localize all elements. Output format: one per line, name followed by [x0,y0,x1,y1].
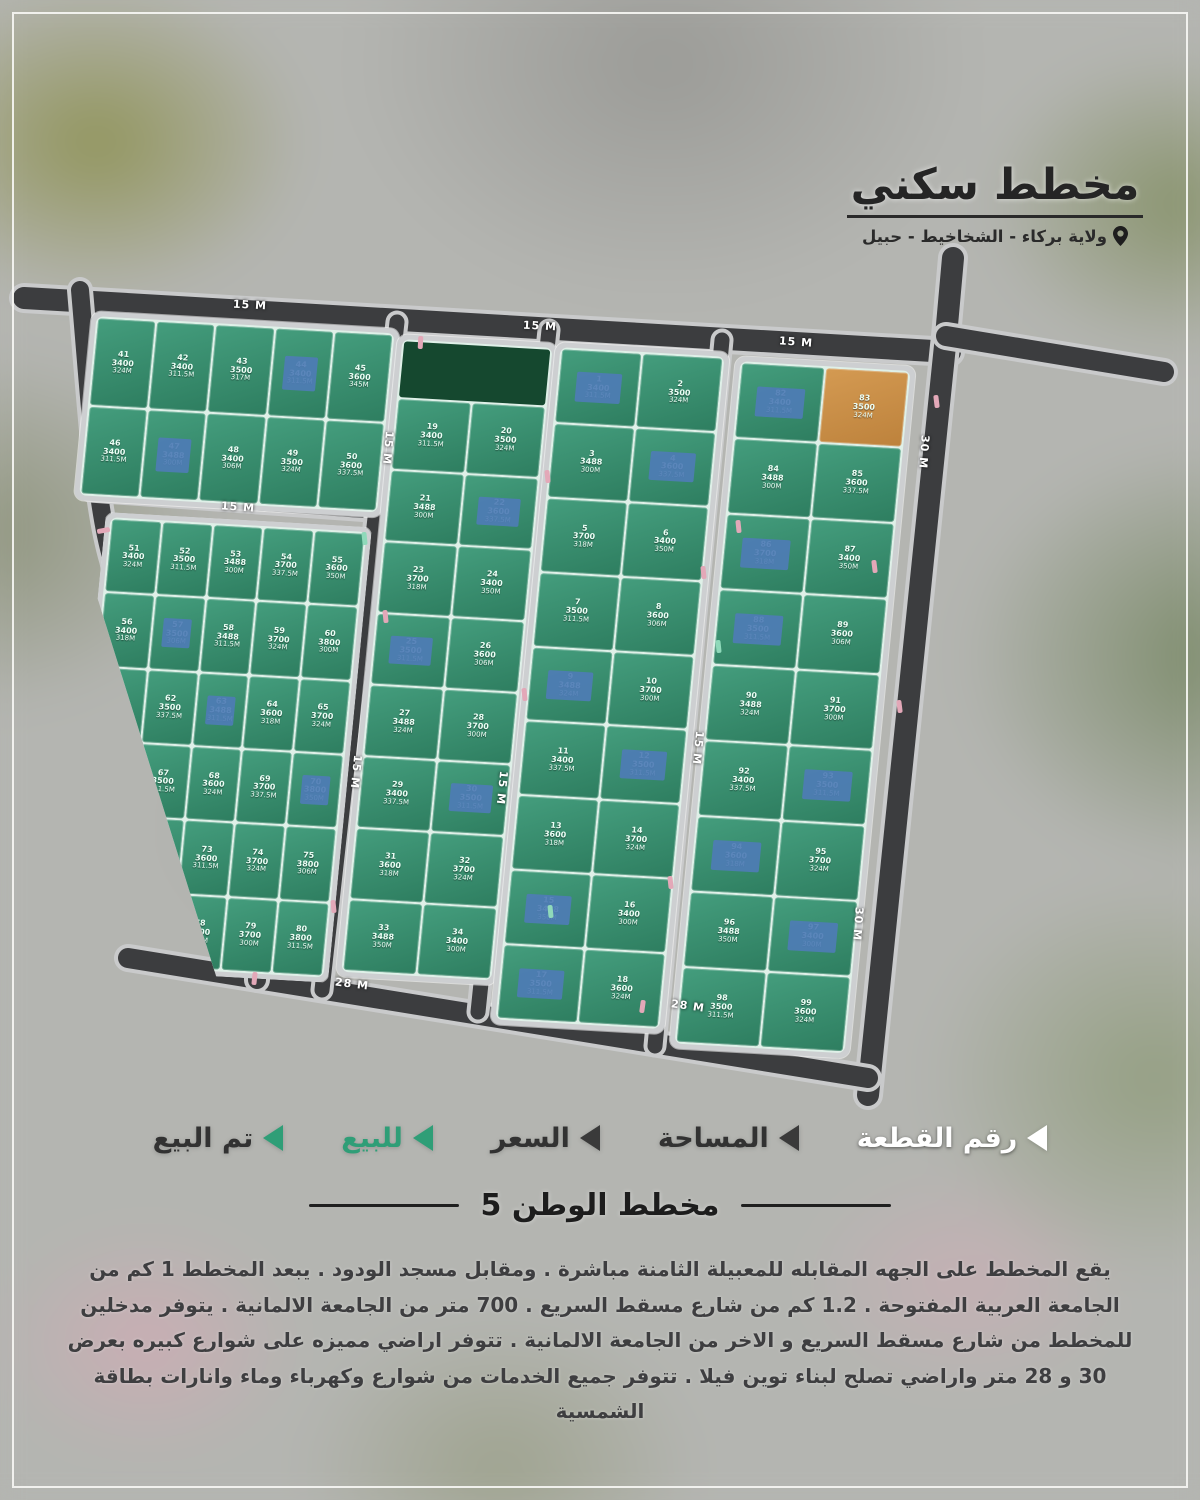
plot: 323700324M [424,833,503,907]
legend-arrow-icon [263,1125,283,1151]
plot-area: 300M [640,695,660,704]
road-width-label: 15 M [523,319,558,334]
plot: 103700300M [607,652,693,729]
plot: 423400311.5M [149,322,215,412]
plot: 113400337.5M [519,722,605,799]
plot-area: 324M [794,1016,814,1025]
plot-area: 337.5M [842,487,869,496]
plot-area: 337.5M [382,798,409,807]
road-width-label: 15 M [233,298,268,313]
plot: 453600345M [327,332,393,422]
legend-item-0: رقم القطعة [857,1123,1048,1154]
plot-area: 324M [494,445,514,454]
plot-area: 318M [407,583,427,592]
plot-area: 318M [115,635,135,644]
plot: 933500311.5M [783,746,872,824]
plot-area: 306M [474,659,494,668]
plot-area: 324M [625,844,645,853]
divider-line [309,1204,459,1207]
block-inner: 413400324M423400311.5M433500317M44340031… [79,316,394,512]
legend-arrow-icon [1027,1125,1047,1151]
plot-area: 317M [230,374,250,383]
sold-stamp [161,618,192,648]
plot: 333488350M [343,900,422,974]
plot-area: 350M [654,546,674,555]
page-title: مخطط سكني [847,160,1144,218]
road-top-right-stub [946,336,1164,372]
plot-area: 324M [122,561,142,570]
plot-area: 345M [349,381,369,390]
plot: 13400311.5M [555,349,641,426]
legend-label: رقم القطعة [857,1123,1018,1154]
road-width-label: 30 M [850,907,865,942]
plot: 203500324M [466,403,545,477]
plot: 623500337.5M [142,670,198,745]
plot-area: 337.5M [548,764,575,773]
plot-area: 311.5M [213,641,240,650]
plot: 183600324M [579,950,665,1027]
plot-area: 311.5M [707,1011,734,1020]
plot: 793700300M [222,898,278,973]
plot: 903488324M [706,666,795,744]
plot: 823400311.5M [735,363,824,441]
road-width-label: 30 M [916,435,931,470]
plot: 833500324M [819,368,908,446]
sold-stamp [155,437,192,474]
plot-area: 337.5M [337,470,364,479]
plot: 603800300M [301,605,357,680]
plot-area: 324M [809,865,829,874]
plot-area: 337.5M [250,791,277,800]
sold-stamp [787,920,837,952]
plot: 63400350M [622,503,708,580]
sold-stamp [282,355,319,392]
plot: 253500311.5M [371,614,450,688]
plot: 213488300M [385,471,464,545]
plot: 943600318M [691,817,780,895]
plot-area: 300M [467,731,487,740]
divider-line [741,1204,891,1207]
plot: 463400311.5M [81,407,147,497]
plot: 753800306M [280,827,336,902]
legend-arrow-icon [580,1125,600,1151]
plot: 313600318M [350,829,429,903]
road-width-label: 15 M [221,499,256,514]
plot: 573500306M [149,596,205,671]
plot-area: 324M [853,412,873,421]
plot: 143700324M [593,801,679,878]
sold-stamp [448,783,492,813]
legend-label: السعر [491,1123,570,1154]
plot-area: 324M [268,644,288,653]
plot-area: 350M [481,588,501,597]
plot-area: 324M [453,874,473,883]
road-entrance-mark [418,336,424,349]
sold-stamp [299,775,330,805]
sold-stamp [516,968,565,1000]
plot-area: 324M [393,727,413,736]
plot: 93488324M [526,647,612,724]
plot: 633488311.5M [193,673,249,748]
plot: 643600318M [243,676,299,751]
legend-arrow-icon [779,1125,799,1151]
plot: 533488300M [207,525,263,600]
plot-area: 311.5M [168,371,195,380]
plot-area: 311.5M [417,440,444,449]
plot-area: 337.5M [729,785,756,794]
plot: 513400324M [105,519,161,594]
sold-stamp [733,613,783,645]
plot: 693700337.5M [236,750,292,825]
plot: 503600337.5M [318,421,384,511]
plot-area: 306M [297,868,317,877]
plot-area: 300M [824,714,844,723]
legend-item-1: المساحة [658,1123,799,1154]
block-top-left: 413400324M423400311.5M433500317M44340031… [74,311,400,518]
plot: 803800311.5M [273,901,329,976]
plot: 243400350M [452,547,531,621]
sold-stamp [476,497,520,527]
plot-area: 318M [544,839,564,848]
sold-stamp [755,386,805,418]
plot-area: 350M [838,563,858,572]
plot: 293400337.5M [357,757,436,831]
plot: 873400350M [805,519,894,597]
plot: 33488300M [548,424,634,501]
plot: 23500324M [636,354,722,431]
plot: 273488324M [364,685,443,759]
plot-area: 318M [379,870,399,879]
location-pin-icon [1113,226,1128,246]
plot: 553600350M [309,531,365,606]
plot-area: 311.5M [192,862,219,871]
plot-area: 311.5M [100,456,127,465]
location-text: ولاية بركاء - الشخاخيط - حبيل [862,227,1107,246]
poster: مخطط سكني ولاية بركاء - الشخاخيط - حبيل [0,0,1200,1500]
road-width-label: 15 M [779,334,814,349]
plot: 883500311.5M [713,590,802,668]
plot-area: 337.5M [271,570,298,579]
plot: 953700324M [775,822,864,900]
plot-area: 300M [224,567,244,576]
plot-area: 300M [762,482,782,491]
sold-stamp [388,636,432,666]
plot-area: 350M [718,936,738,945]
plot: 233700318M [378,542,457,616]
sold-stamp [740,538,790,570]
plot: 123500311.5M [600,726,686,803]
plot-area: 318M [260,718,280,727]
plot: 653700324M [294,679,350,754]
plot: 923400337.5M [699,741,788,819]
sold-stamp [574,372,623,404]
legend-item-4: تم البيع [153,1123,284,1154]
legend-label: تم البيع [153,1123,254,1154]
plot: 853600337.5M [812,444,901,522]
plot: 473488300M [141,410,207,500]
section-divider: مخطط الوطن 5 [0,1188,1200,1223]
plot: 683600324M [185,747,241,822]
plot: 963488350M [684,892,773,970]
plot-area: 318M [573,541,593,550]
plot-area: 311.5M [562,615,589,624]
plot: 193400311.5M [392,399,471,473]
plot-area: 337.5M [155,712,182,721]
plot: 593700324M [251,602,307,677]
plot: 133600318M [512,796,598,873]
plot: 433500317M [208,325,274,415]
plot: 973400300M [768,897,857,975]
sold-stamp [619,749,668,781]
plot-area: 300M [414,512,434,521]
legend: رقم القطعةالمساحةالسعرللبيعتم البيع [50,1112,1150,1164]
plot-area: 311.5M [286,942,313,951]
plot: 493500324M [259,417,325,507]
plot: 283700300M [438,690,517,764]
plot-area: 306M [831,638,851,647]
plot: 413400324M [90,318,156,408]
plot: 843488300M [728,439,817,517]
plot: 483400306M [200,414,266,504]
plot: 913700300M [790,671,879,749]
plot: 43600337.5M [629,428,715,505]
plot-area: 324M [611,993,631,1002]
plot: 343400300M [417,905,496,979]
sold-stamp [711,840,761,872]
sold-stamp [648,451,697,483]
legend-label: للبيع [341,1123,403,1154]
plot-area: 350M [372,941,392,950]
plot-area: 324M [740,709,760,718]
plot-area: 300M [618,918,638,927]
description-text: يقع المخطط على الجهه المقابله للمعبيلة ا… [66,1252,1134,1430]
plot: 83600306M [615,577,701,654]
plot-area: 324M [668,397,688,406]
location-line: ولاية بركاء - الشخاخيط - حبيل [830,226,1160,246]
plot: 73500311.5M [534,573,620,650]
plot-area: 300M [580,467,600,476]
legend-item-2: السعر [491,1123,600,1154]
legend-item-3: للبيع [341,1123,433,1154]
sold-stamp [545,670,594,702]
plot-area: 300M [446,946,466,955]
plot: 523500311.5M [156,522,212,597]
plot-area: 324M [311,721,331,730]
plot: 443400311.5M [268,329,334,419]
plot: 703800350M [287,753,343,828]
sold-stamp [205,695,236,725]
plot: 263600306M [445,618,524,692]
mosque-plot [399,341,550,405]
plot: 743700324M [229,824,285,899]
plot-area: 311.5M [170,564,197,573]
plot: 173500311.5M [498,945,584,1022]
plot-area: 350M [326,573,346,582]
plot: 223600337.5M [459,475,538,549]
plot-area: 324M [112,368,132,377]
plot: 993600324M [761,973,850,1051]
plot: 893600306M [797,595,886,673]
legend-label: المساحة [658,1123,769,1154]
plot: 583488311.5M [200,599,256,674]
plot-area: 324M [246,866,266,875]
plot-area: 306M [647,620,667,629]
sold-stamp [802,769,852,801]
plot: 163400300M [586,875,672,952]
plot-area: 300M [239,939,259,948]
plot: 543700337.5M [258,528,314,603]
plot: 53700318M [541,498,627,575]
section-title: مخطط الوطن 5 [481,1188,720,1223]
header: مخطط سكني ولاية بركاء - الشخاخيط - حبيل [830,160,1160,246]
legend-arrow-icon [413,1125,433,1151]
plot-area: 324M [281,466,301,475]
plot-area: 300M [318,647,338,656]
plot: 863700318M [721,515,810,593]
plot-area: 306M [222,463,242,472]
plot-area: 324M [202,789,222,798]
plots-grid: 413400324M423400311.5M433500317M44340031… [81,318,392,510]
